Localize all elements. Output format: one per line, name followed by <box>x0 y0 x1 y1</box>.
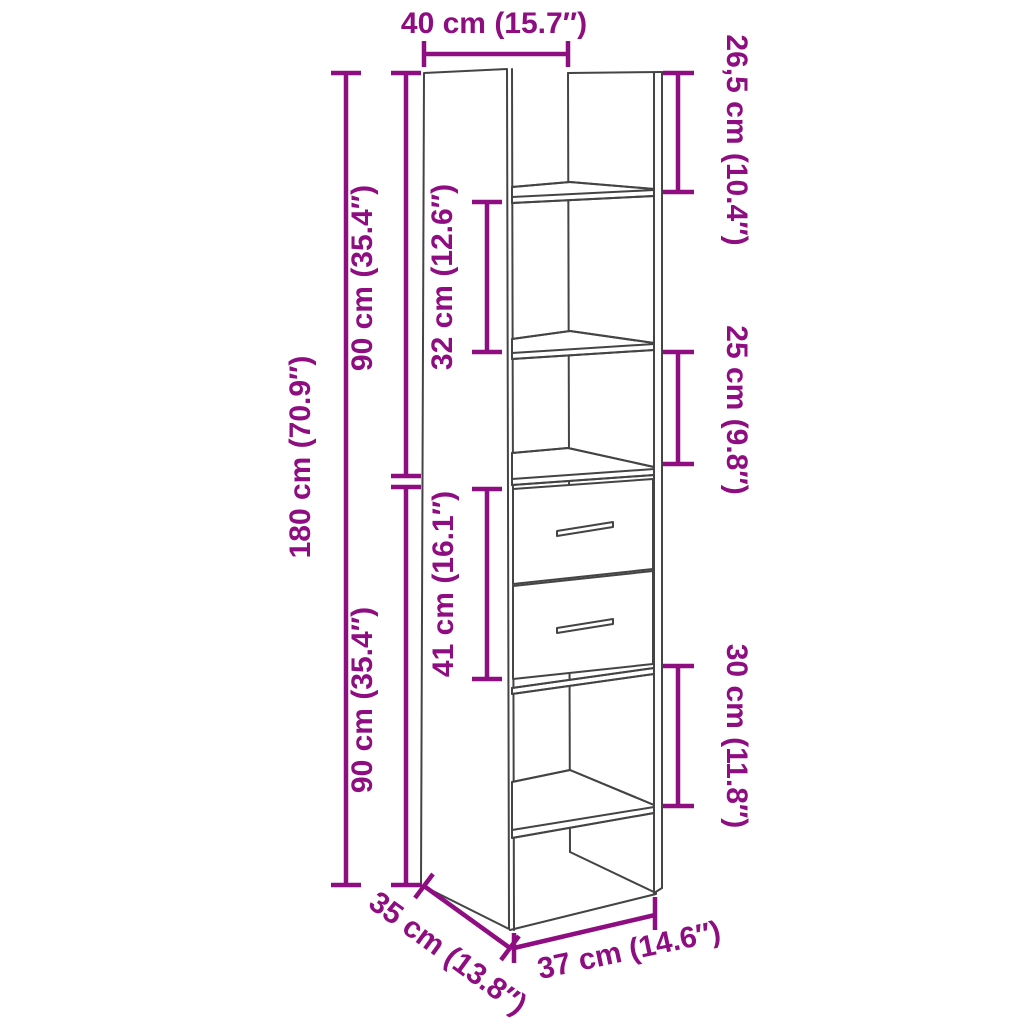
furniture-dimension-diagram: 40 cm (15.7″) 26,5 cm (10.4″) 90 cm (35.… <box>0 0 1024 1024</box>
shelf-2 <box>512 331 654 359</box>
bottom-front-edge <box>510 894 656 930</box>
shelf-lower <box>512 770 654 838</box>
dim-label-lower-section-height: 90 cm (35.4″) <box>346 607 379 793</box>
dim-label-bottom-width: 37 cm (14.6″) <box>535 915 724 986</box>
dim-top-compartment-height: 26,5 cm (10.4″) <box>663 34 753 245</box>
dim-upper-section-height: 90 cm (35.4″) <box>346 73 421 476</box>
dim-lower-section-height: 90 cm (35.4″) <box>346 487 421 885</box>
dim-label-middle-compartment-height: 25 cm (9.8″) <box>720 325 753 494</box>
dim-label-total-height: 180 cm (70.9″) <box>284 356 317 559</box>
dim-lower-compartment-height: 30 cm (11.8″) <box>663 644 753 828</box>
diagram-canvas: 40 cm (15.7″) 26,5 cm (10.4″) 90 cm (35.… <box>0 0 1024 1024</box>
dim-label-upper-shelf-gap: 32 cm (12.6″) <box>426 184 459 370</box>
dim-label-top-width: 40 cm (15.7″) <box>401 7 587 40</box>
dim-label-top-compartment-height: 26,5 cm (10.4″) <box>720 34 753 245</box>
dim-label-drawer-section-height: 41 cm (16.1″) <box>427 491 460 677</box>
shelf-1 <box>512 182 654 203</box>
back-panel-bottom-edge <box>570 852 656 893</box>
dim-label-lower-compartment-height: 30 cm (11.8″) <box>720 644 753 828</box>
dim-bottom-width: 37 cm (14.6″) <box>514 897 724 986</box>
dim-middle-compartment-height: 25 cm (9.8″) <box>663 325 753 494</box>
dim-top-width: 40 cm (15.7″) <box>401 7 587 67</box>
dim-label-upper-section-height: 90 cm (35.4″) <box>346 185 379 371</box>
